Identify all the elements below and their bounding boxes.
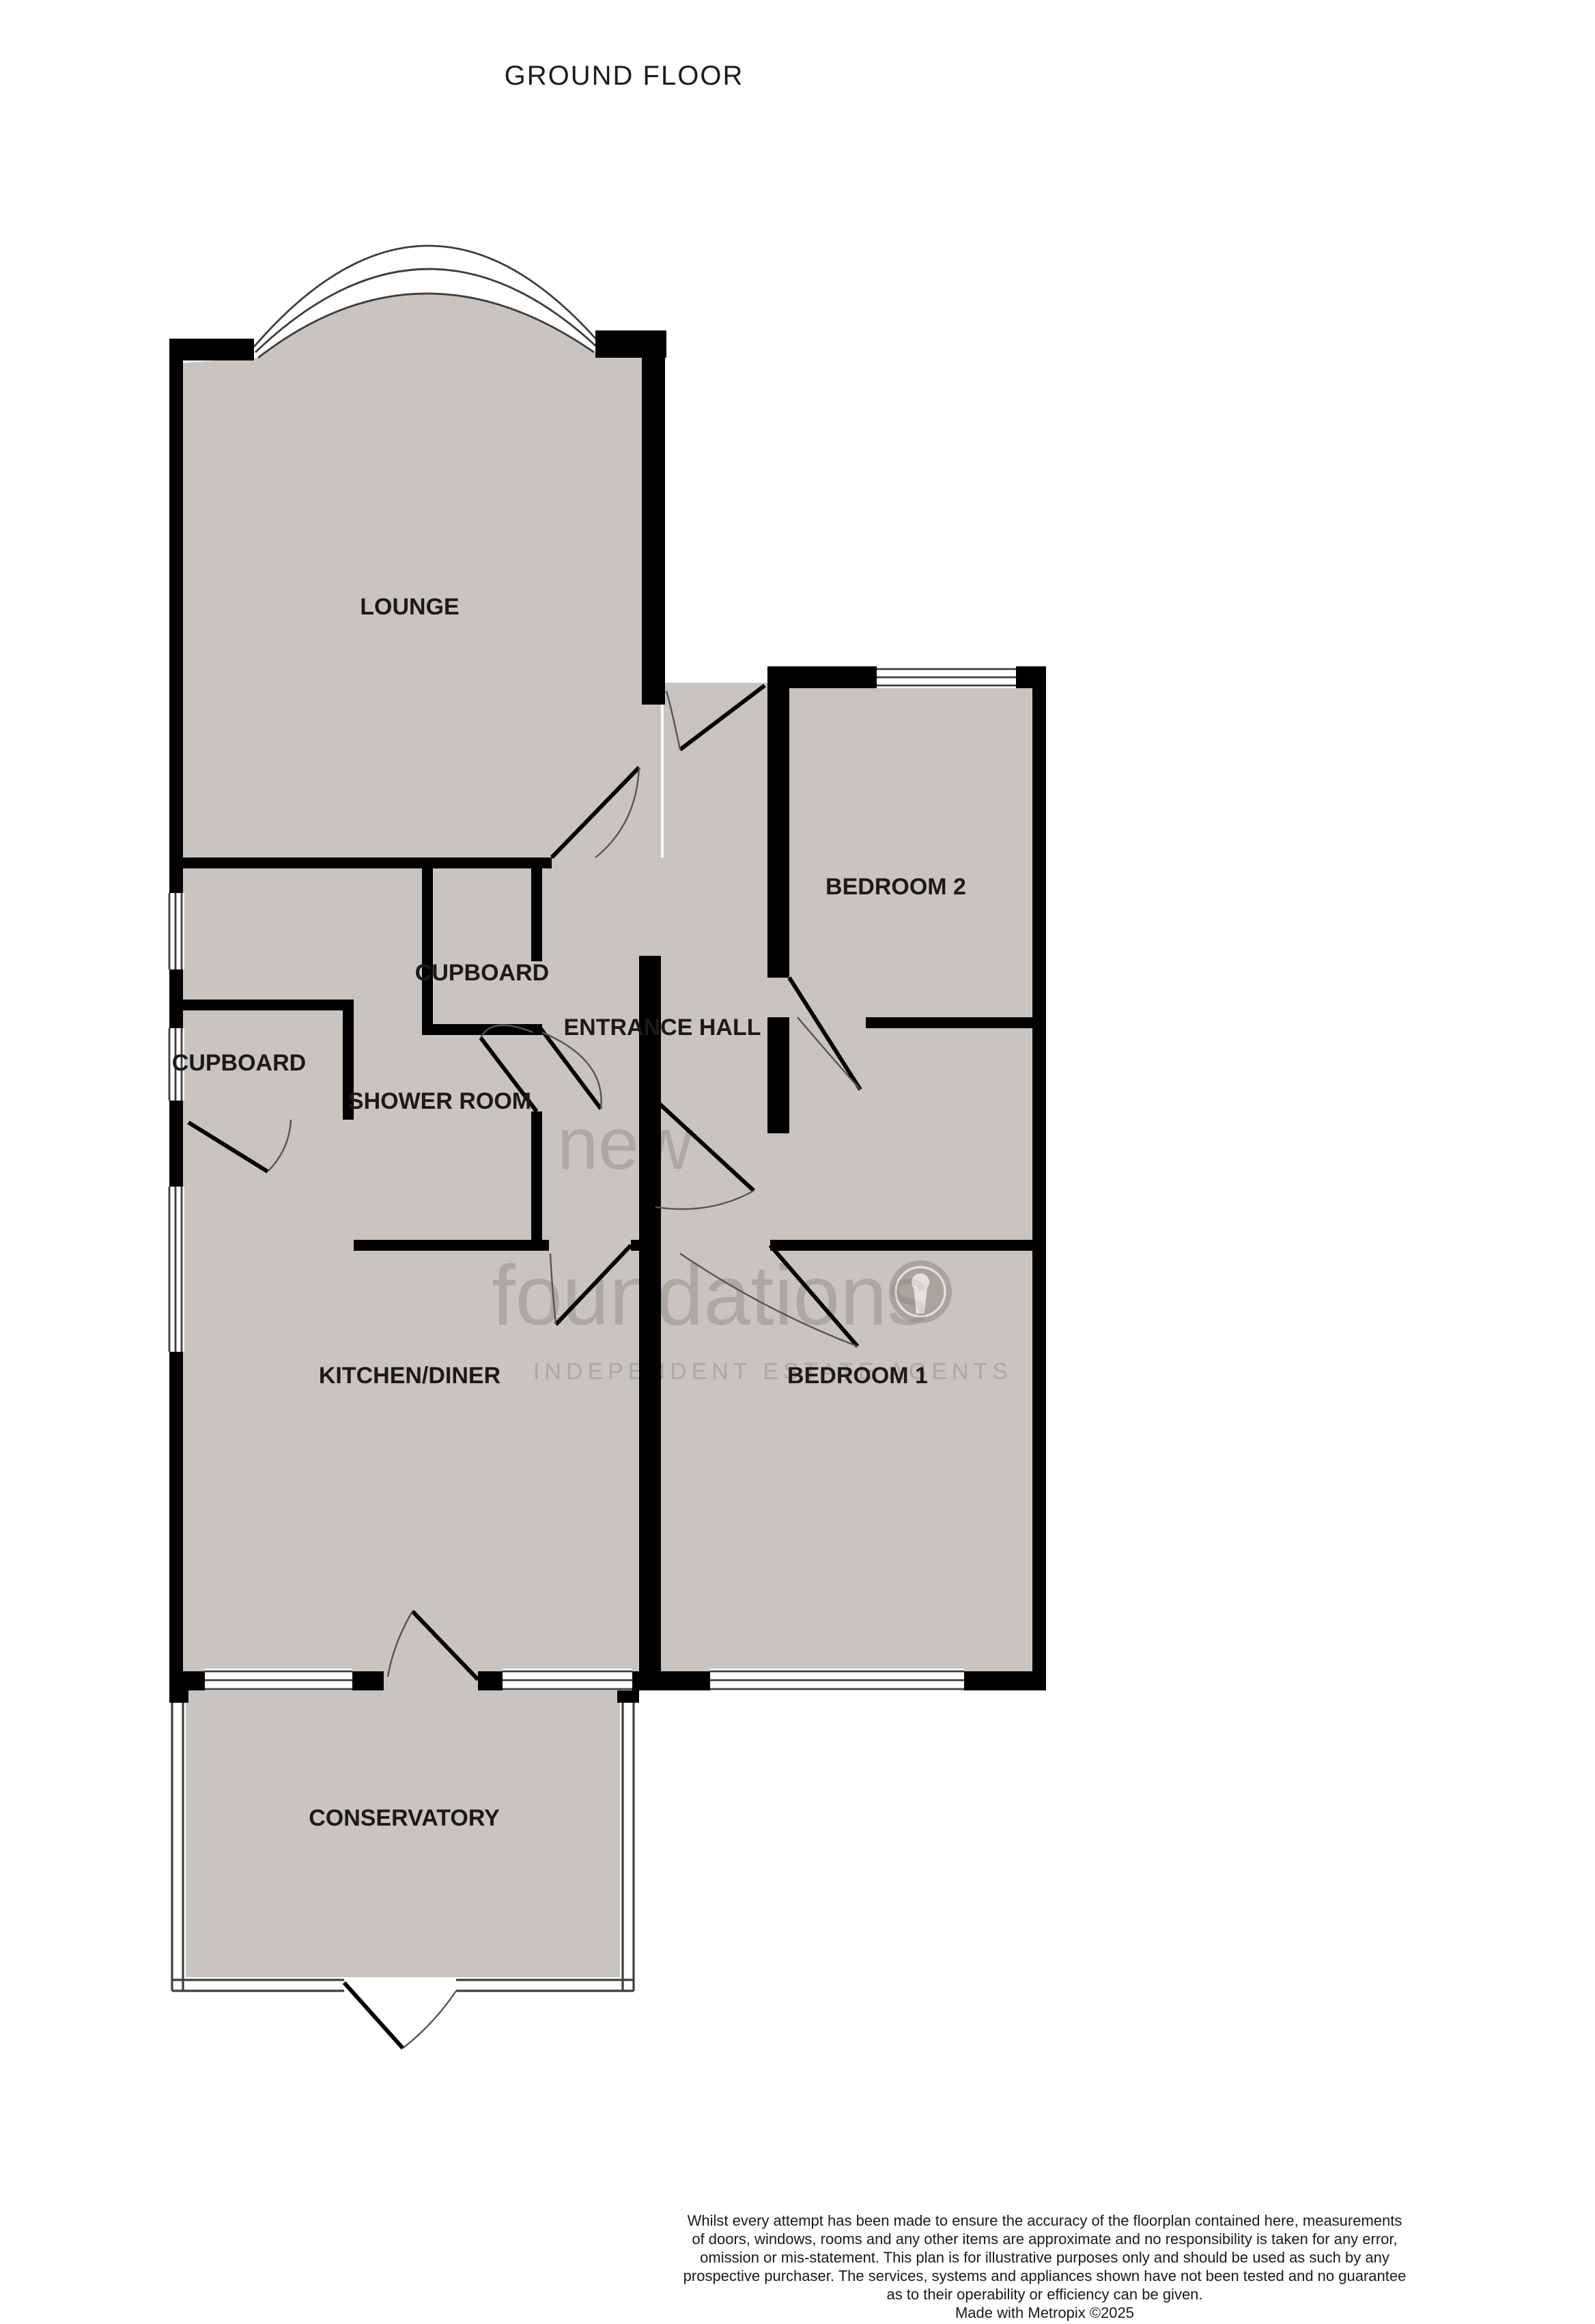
label-bedroom2: BEDROOM 2 <box>825 874 966 900</box>
metropix-credit: Made with Metropix ©2025 <box>955 2304 1134 2321</box>
conservatory-floor <box>175 1690 631 1983</box>
keyhole-icon <box>889 1260 952 1323</box>
disclaimer-line-2: of doors, windows, rooms and any other i… <box>692 2230 1397 2248</box>
label-cupboard-left: CUPBOARD <box>172 1050 306 1076</box>
watermark-tagline: INDEPENDENT ESTATE AGENTS <box>533 1359 1013 1385</box>
disclaimer-line-5: as to their operability or efficiency ca… <box>886 2286 1202 2303</box>
watermark-foundations: foundations <box>492 1249 929 1343</box>
floorplan-canvas: GROUND FLOOR new foundations INDEPENDENT… <box>0 0 1595 2324</box>
disclaimer: Whilst every attempt has been made to en… <box>683 2212 1407 2321</box>
label-conservatory: CONSERVATORY <box>309 1805 500 1831</box>
label-cupboard-top: CUPBOARD <box>415 960 549 986</box>
disclaimer-line-1: Whilst every attempt has been made to en… <box>688 2212 1402 2229</box>
label-bedroom1: BEDROOM 1 <box>787 1363 928 1389</box>
lounge-floor <box>178 294 661 868</box>
label-lounge: LOUNGE <box>360 594 459 620</box>
page-title: GROUND FLOOR <box>505 61 744 91</box>
disclaimer-line-3: omission or mis-statement. This plan is … <box>700 2249 1389 2266</box>
label-shower-room: SHOWER ROOM <box>348 1088 531 1114</box>
label-kitchen-diner: KITCHEN/DINER <box>319 1363 500 1389</box>
label-entrance-hall: ENTRANCE HALL <box>564 1015 761 1040</box>
bedroom2-floor <box>778 675 1046 1028</box>
disclaimer-line-4: prospective purchaser. The services, sys… <box>683 2267 1407 2284</box>
hall-strip-floor <box>767 1017 1046 1251</box>
